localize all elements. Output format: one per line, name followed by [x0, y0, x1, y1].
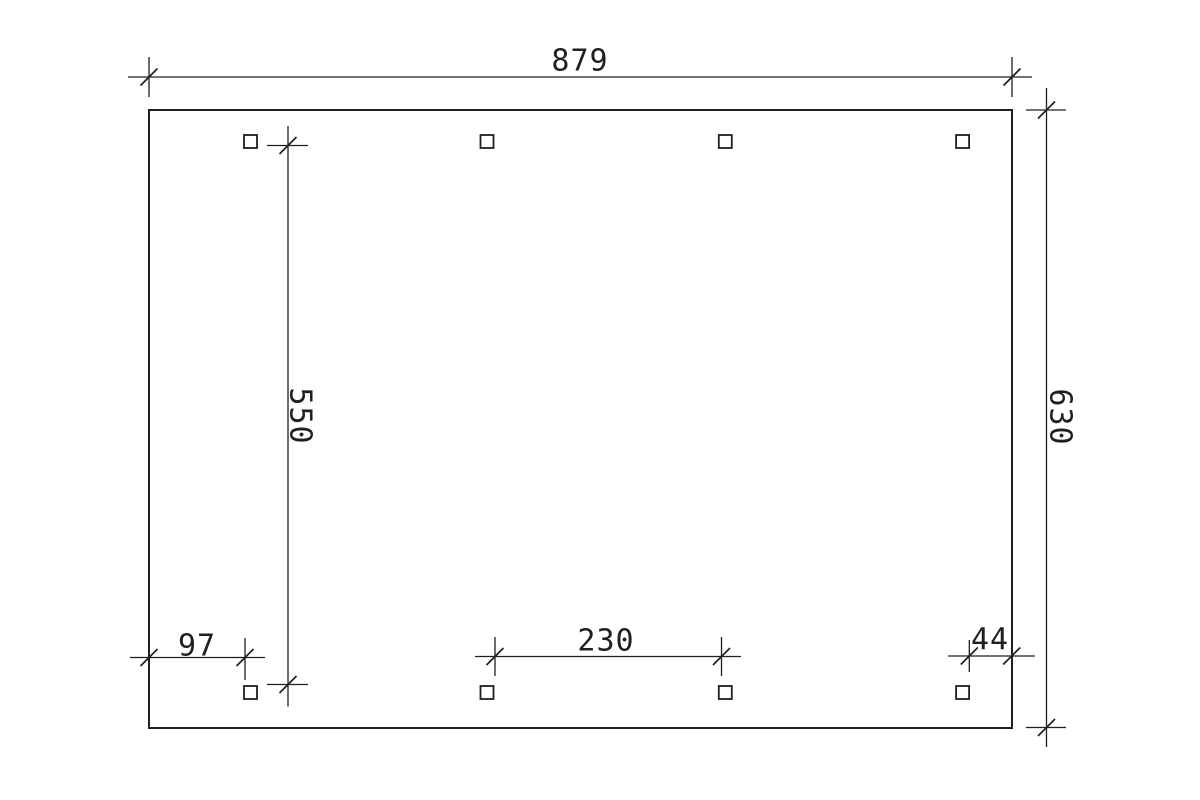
- dimension-879-label: 879: [551, 44, 608, 79]
- post-square-r2c3: [719, 686, 732, 699]
- dimension-630-label: 630: [1043, 388, 1078, 445]
- post-square-r1c3: [719, 135, 732, 148]
- post-square-r1c2: [481, 135, 494, 148]
- drawing-page: 8795506309723044: [0, 0, 1200, 800]
- dimension-44-label: 44: [971, 623, 1009, 658]
- dimension-97-label: 97: [178, 629, 216, 664]
- post-square-r1c4: [956, 135, 969, 148]
- post-square-r2c2: [481, 686, 494, 699]
- post-square-r1c1: [244, 135, 257, 148]
- floor-plan-canvas: 8795506309723044: [0, 0, 1200, 800]
- dimension-230-label: 230: [577, 624, 634, 659]
- post-square-r2c1: [244, 686, 257, 699]
- dimension-550-label: 550: [283, 387, 318, 444]
- post-square-r2c4: [956, 686, 969, 699]
